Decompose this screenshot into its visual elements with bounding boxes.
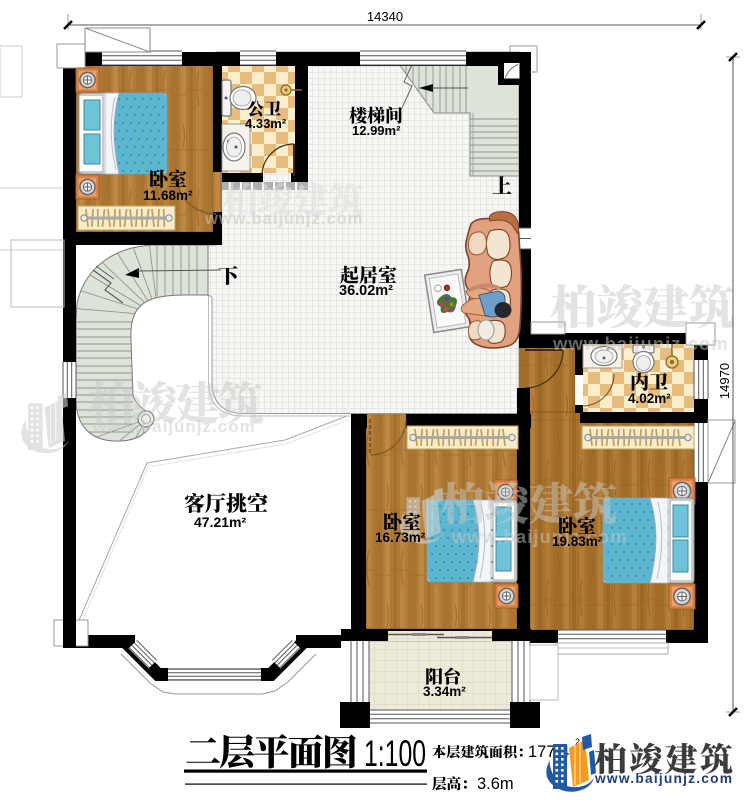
svg-text:14970: 14970 (717, 363, 732, 399)
svg-text:14340: 14340 (367, 9, 403, 24)
svg-text:www.baijunjz.com: www.baijunjz.com (204, 210, 363, 228)
svg-text:4.33m²: 4.33m² (245, 116, 287, 131)
svg-text:3.6m: 3.6m (477, 775, 514, 793)
svg-text:www.baijunjz.com: www.baijunjz.com (92, 417, 256, 436)
svg-text:3.34m²: 3.34m² (423, 684, 466, 699)
svg-text:36.02m²: 36.02m² (339, 283, 393, 299)
svg-text:1:100: 1:100 (364, 733, 426, 774)
svg-text:www.baijunjz.com: www.baijunjz.com (594, 771, 733, 786)
svg-text:4.02m²: 4.02m² (628, 391, 671, 406)
svg-text:12.99m²: 12.99m² (352, 123, 401, 138)
svg-text:19.83m²: 19.83m² (552, 534, 603, 549)
svg-text:16.73m²: 16.73m² (375, 530, 426, 545)
svg-text:47.21m²: 47.21m² (194, 514, 246, 530)
svg-text:www.baijunjz.com: www.baijunjz.com (552, 333, 729, 354)
svg-text:11.68m²: 11.68m² (143, 188, 193, 203)
